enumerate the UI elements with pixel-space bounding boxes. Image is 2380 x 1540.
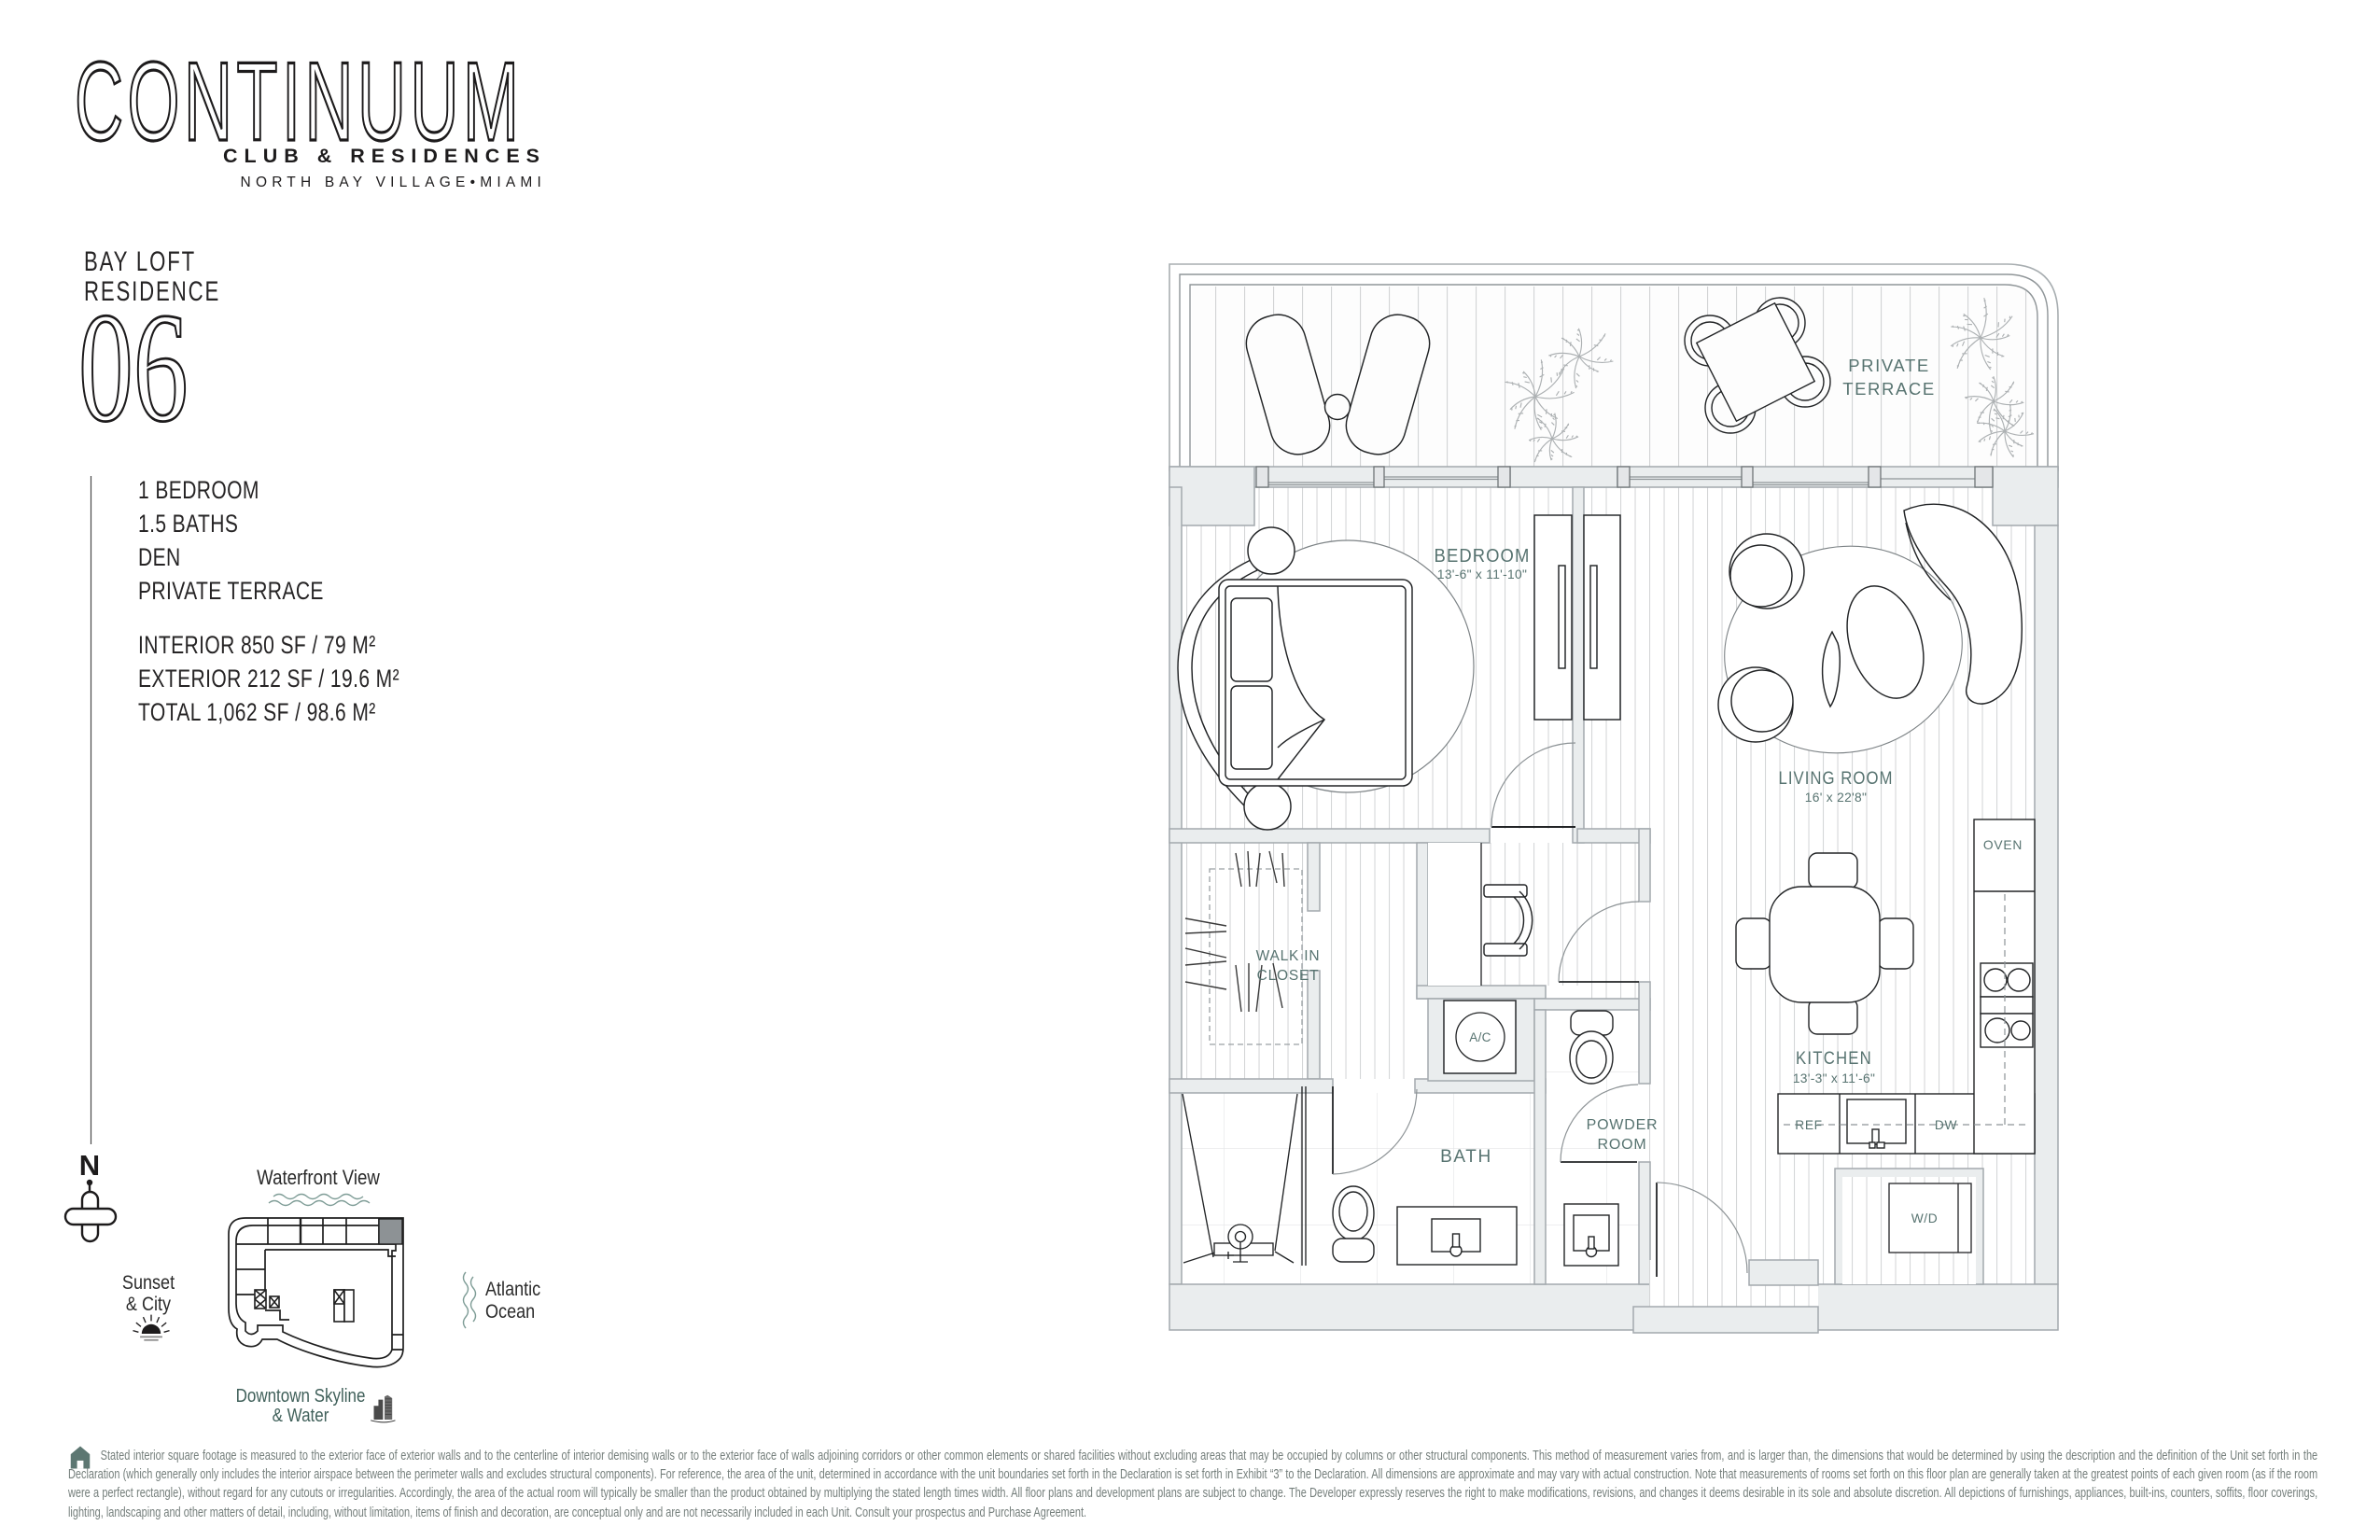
svg-text:CLUB & RESIDENCES: CLUB & RESIDENCES <box>223 145 546 167</box>
svg-text:13'-3" x 11'-6": 13'-3" x 11'-6" <box>1793 1071 1875 1085</box>
svg-text:1.5 BATHS: 1.5 BATHS <box>138 511 238 539</box>
svg-text:ROOM: ROOM <box>1598 1137 1647 1153</box>
svg-text:13'-6" x 11'-10": 13'-6" x 11'-10" <box>1437 567 1527 581</box>
svg-text:EXTERIOR 212 SF / 19.6 M²: EXTERIOR 212 SF / 19.6 M² <box>138 665 399 693</box>
svg-text:POWDER: POWDER <box>1587 1117 1659 1133</box>
svg-text:& City: & City <box>126 1294 171 1316</box>
svg-text:N: N <box>79 1149 100 1182</box>
svg-text:PRIVATE: PRIVATE <box>1848 356 1930 375</box>
svg-text:06: 06 <box>78 282 189 455</box>
svg-text:Downtown Skyline: Downtown Skyline <box>236 1385 366 1407</box>
svg-text:LIVING ROOM: LIVING ROOM <box>1778 768 1893 788</box>
svg-text:1 BEDROOM: 1 BEDROOM <box>138 477 259 505</box>
svg-text:INTERIOR 850 SF / 79 M²: INTERIOR 850 SF / 79 M² <box>138 632 376 660</box>
svg-text:Ocean: Ocean <box>485 1301 535 1323</box>
svg-text:TOTAL 1,062 SF / 98.6 M²: TOTAL 1,062 SF / 98.6 M² <box>138 699 376 727</box>
svg-text:BAY LOFT: BAY LOFT <box>84 245 196 277</box>
svg-text:KITCHEN: KITCHEN <box>1796 1048 1872 1068</box>
svg-text:REF: REF <box>1795 1118 1822 1132</box>
svg-text:WALK IN: WALK IN <box>1256 948 1321 964</box>
svg-text:OVEN: OVEN <box>1983 838 2023 852</box>
svg-text:BEDROOM: BEDROOM <box>1435 545 1531 567</box>
svg-text:PRIVATE TERRACE: PRIVATE TERRACE <box>138 578 324 606</box>
svg-text:BATH: BATH <box>1440 1147 1492 1167</box>
svg-text:Atlantic: Atlantic <box>485 1279 540 1301</box>
svg-text:NORTH BAY VILLAGE•MIAMI: NORTH BAY VILLAGE•MIAMI <box>241 175 546 190</box>
svg-text:16' x 22'8": 16' x 22'8" <box>1805 791 1867 805</box>
svg-text:Sunset: Sunset <box>122 1272 175 1295</box>
svg-text:Waterfront View: Waterfront View <box>257 1166 380 1189</box>
svg-text:DEN: DEN <box>138 544 181 572</box>
svg-text:W/D: W/D <box>1911 1211 1939 1225</box>
svg-text:CLOSET: CLOSET <box>1257 968 1320 984</box>
svg-text:DW: DW <box>1935 1118 1957 1132</box>
svg-text:A/C: A/C <box>1469 1030 1491 1044</box>
svg-text:TERRACE: TERRACE <box>1842 379 1936 399</box>
svg-text:& Water: & Water <box>273 1405 329 1426</box>
